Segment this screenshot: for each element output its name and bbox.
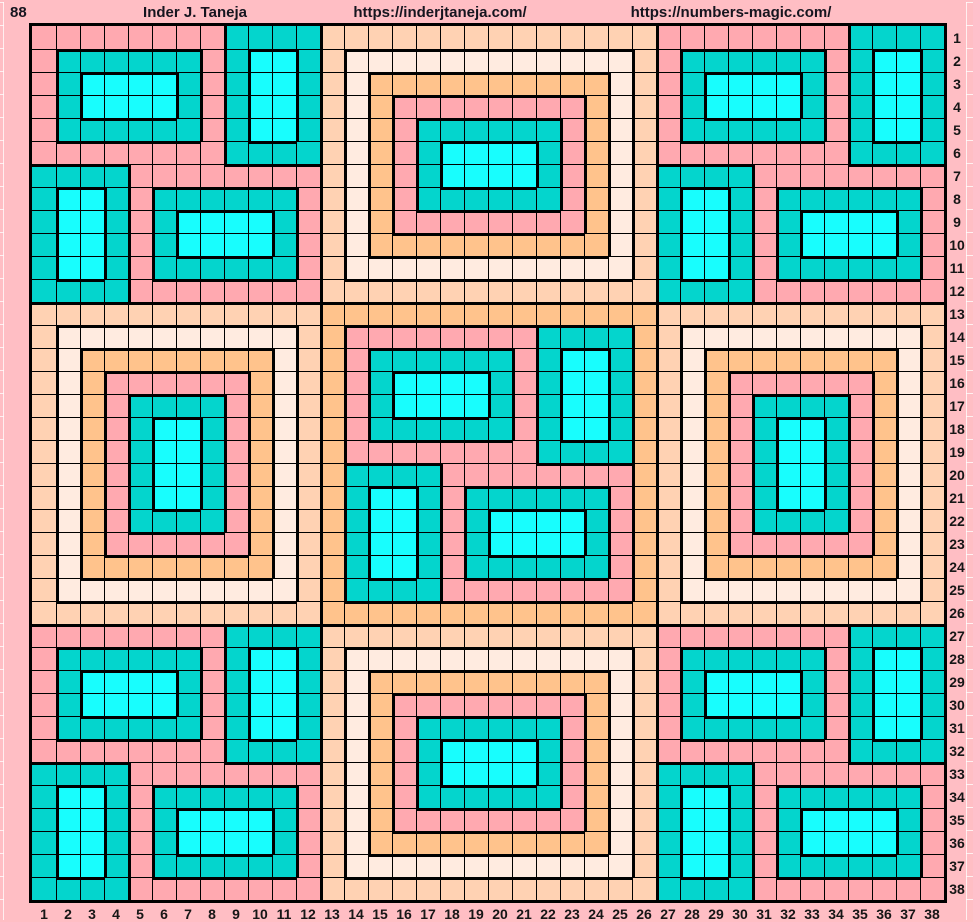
grid-cell[interactable] — [320, 624, 344, 647]
grid-cell[interactable] — [368, 72, 392, 95]
grid-cell[interactable] — [272, 647, 296, 670]
grid-cell[interactable] — [896, 118, 920, 141]
grid-cell[interactable] — [80, 555, 104, 578]
grid-cell[interactable] — [272, 49, 296, 72]
grid-cell[interactable] — [176, 118, 200, 141]
grid-cell[interactable] — [32, 532, 56, 555]
grid-cell[interactable] — [632, 49, 656, 72]
grid-cell[interactable] — [176, 578, 200, 601]
grid-cell[interactable] — [800, 95, 824, 118]
grid-cell[interactable] — [392, 348, 416, 371]
grid-cell[interactable] — [560, 624, 584, 647]
grid-cell[interactable] — [680, 854, 704, 877]
grid-cell[interactable] — [608, 256, 632, 279]
grid-cell[interactable] — [104, 187, 128, 210]
grid-cell[interactable] — [152, 279, 176, 302]
grid-cell[interactable] — [656, 325, 680, 348]
grid-cell[interactable] — [152, 26, 176, 49]
grid-cell[interactable] — [272, 877, 296, 900]
grid-cell[interactable] — [872, 371, 896, 394]
grid-cell[interactable] — [824, 371, 848, 394]
grid-cell[interactable] — [560, 486, 584, 509]
grid-cell[interactable] — [632, 72, 656, 95]
grid-cell[interactable] — [248, 693, 272, 716]
grid-cell[interactable] — [224, 325, 248, 348]
grid-cell[interactable] — [464, 762, 488, 785]
grid-cell[interactable] — [128, 601, 152, 624]
grid-cell[interactable] — [704, 670, 728, 693]
grid-cell[interactable] — [224, 164, 248, 187]
grid-cell[interactable] — [920, 739, 944, 762]
grid-cell[interactable] — [368, 118, 392, 141]
grid-cell[interactable] — [680, 210, 704, 233]
grid-cell[interactable] — [680, 647, 704, 670]
grid-cell[interactable] — [416, 371, 440, 394]
grid-cell[interactable] — [464, 187, 488, 210]
grid-cell[interactable] — [536, 601, 560, 624]
grid-cell[interactable] — [608, 877, 632, 900]
grid-cell[interactable] — [200, 279, 224, 302]
grid-cell[interactable] — [608, 808, 632, 831]
grid-cell[interactable] — [80, 279, 104, 302]
grid-cell[interactable] — [824, 141, 848, 164]
grid-cell[interactable] — [632, 302, 656, 325]
grid-cell[interactable] — [344, 279, 368, 302]
grid-cell[interactable] — [488, 739, 512, 762]
grid-cell[interactable] — [632, 601, 656, 624]
grid-cell[interactable] — [656, 693, 680, 716]
grid-cell[interactable] — [560, 348, 584, 371]
grid-cell[interactable] — [752, 739, 776, 762]
grid-cell[interactable] — [176, 210, 200, 233]
grid-cell[interactable] — [728, 95, 752, 118]
grid-cell[interactable] — [320, 394, 344, 417]
grid-cell[interactable] — [560, 279, 584, 302]
grid-cell[interactable] — [80, 647, 104, 670]
grid-cell[interactable] — [248, 279, 272, 302]
grid-cell[interactable] — [872, 72, 896, 95]
grid-cell[interactable] — [536, 555, 560, 578]
grid-cell[interactable] — [368, 739, 392, 762]
grid-cell[interactable] — [848, 877, 872, 900]
grid-cell[interactable] — [344, 325, 368, 348]
grid-cell[interactable] — [56, 716, 80, 739]
grid-cell[interactable] — [728, 647, 752, 670]
grid-cell[interactable] — [344, 808, 368, 831]
grid-cell[interactable] — [272, 164, 296, 187]
grid-cell[interactable] — [248, 371, 272, 394]
grid-cell[interactable] — [32, 831, 56, 854]
grid-cell[interactable] — [776, 716, 800, 739]
grid-cell[interactable] — [272, 26, 296, 49]
grid-cell[interactable] — [296, 578, 320, 601]
grid-cell[interactable] — [752, 210, 776, 233]
grid-cell[interactable] — [632, 141, 656, 164]
grid-cell[interactable] — [848, 578, 872, 601]
grid-cell[interactable] — [560, 164, 584, 187]
grid-cell[interactable] — [224, 486, 248, 509]
grid-cell[interactable] — [392, 555, 416, 578]
grid-cell[interactable] — [104, 739, 128, 762]
grid-cell[interactable] — [704, 693, 728, 716]
grid-cell[interactable] — [56, 624, 80, 647]
grid-cell[interactable] — [608, 785, 632, 808]
grid-cell[interactable] — [464, 302, 488, 325]
grid-cell[interactable] — [416, 785, 440, 808]
grid-cell[interactable] — [344, 486, 368, 509]
grid-cell[interactable] — [896, 854, 920, 877]
grid-cell[interactable] — [392, 49, 416, 72]
grid-cell[interactable] — [80, 670, 104, 693]
grid-cell[interactable] — [704, 739, 728, 762]
grid-cell[interactable] — [128, 877, 152, 900]
grid-cell[interactable] — [536, 532, 560, 555]
grid-cell[interactable] — [704, 440, 728, 463]
grid-cell[interactable] — [56, 233, 80, 256]
grid-cell[interactable] — [128, 371, 152, 394]
grid-cell[interactable] — [80, 256, 104, 279]
grid-cell[interactable] — [896, 831, 920, 854]
grid-cell[interactable] — [416, 440, 440, 463]
grid-cell[interactable] — [776, 854, 800, 877]
grid-cell[interactable] — [152, 164, 176, 187]
grid-cell[interactable] — [368, 95, 392, 118]
grid-cell[interactable] — [560, 141, 584, 164]
grid-cell[interactable] — [536, 417, 560, 440]
grid-cell[interactable] — [512, 394, 536, 417]
grid-cell[interactable] — [224, 647, 248, 670]
grid-cell[interactable] — [680, 463, 704, 486]
grid-cell[interactable] — [608, 49, 632, 72]
grid-cell[interactable] — [560, 440, 584, 463]
grid-cell[interactable] — [464, 440, 488, 463]
grid-cell[interactable] — [776, 532, 800, 555]
grid-cell[interactable] — [368, 693, 392, 716]
grid-cell[interactable] — [632, 26, 656, 49]
grid-cell[interactable] — [440, 233, 464, 256]
grid-cell[interactable] — [608, 26, 632, 49]
grid-cell[interactable] — [656, 164, 680, 187]
grid-cell[interactable] — [32, 854, 56, 877]
grid-cell[interactable] — [176, 463, 200, 486]
grid-cell[interactable] — [704, 647, 728, 670]
grid-cell[interactable] — [488, 670, 512, 693]
grid-cell[interactable] — [728, 532, 752, 555]
grid-cell[interactable] — [512, 831, 536, 854]
grid-cell[interactable] — [56, 210, 80, 233]
grid-cell[interactable] — [56, 693, 80, 716]
grid-cell[interactable] — [536, 693, 560, 716]
grid-cell[interactable] — [752, 279, 776, 302]
grid-cell[interactable] — [464, 808, 488, 831]
grid-cell[interactable] — [800, 762, 824, 785]
grid-cell[interactable] — [368, 187, 392, 210]
grid-cell[interactable] — [632, 233, 656, 256]
grid-cell[interactable] — [368, 233, 392, 256]
grid-cell[interactable] — [560, 463, 584, 486]
grid-cell[interactable] — [32, 601, 56, 624]
grid-cell[interactable] — [248, 210, 272, 233]
grid-cell[interactable] — [560, 532, 584, 555]
grid-cell[interactable] — [920, 854, 944, 877]
grid-cell[interactable] — [872, 325, 896, 348]
grid-cell[interactable] — [656, 302, 680, 325]
grid-cell[interactable] — [872, 440, 896, 463]
grid-cell[interactable] — [608, 210, 632, 233]
grid-cell[interactable] — [656, 808, 680, 831]
grid-cell[interactable] — [584, 877, 608, 900]
grid-cell[interactable] — [80, 141, 104, 164]
grid-cell[interactable] — [776, 624, 800, 647]
grid-cell[interactable] — [704, 95, 728, 118]
grid-cell[interactable] — [32, 877, 56, 900]
grid-cell[interactable] — [680, 394, 704, 417]
grid-cell[interactable] — [680, 417, 704, 440]
grid-cell[interactable] — [368, 210, 392, 233]
grid-cell[interactable] — [896, 785, 920, 808]
grid-cell[interactable] — [728, 831, 752, 854]
grid-cell[interactable] — [728, 440, 752, 463]
grid-cell[interactable] — [800, 785, 824, 808]
grid-cell[interactable] — [464, 555, 488, 578]
grid-cell[interactable] — [704, 210, 728, 233]
grid-cell[interactable] — [848, 394, 872, 417]
grid-cell[interactable] — [152, 187, 176, 210]
grid-cell[interactable] — [848, 716, 872, 739]
grid-cell[interactable] — [824, 785, 848, 808]
grid-cell[interactable] — [872, 49, 896, 72]
grid-cell[interactable] — [512, 509, 536, 532]
grid-cell[interactable] — [416, 302, 440, 325]
grid-cell[interactable] — [104, 325, 128, 348]
grid-cell[interactable] — [440, 716, 464, 739]
grid-cell[interactable] — [776, 279, 800, 302]
grid-cell[interactable] — [800, 72, 824, 95]
grid-cell[interactable] — [272, 808, 296, 831]
grid-cell[interactable] — [248, 785, 272, 808]
grid-cell[interactable] — [80, 348, 104, 371]
grid-cell[interactable] — [320, 877, 344, 900]
grid-cell[interactable] — [320, 785, 344, 808]
grid-cell[interactable] — [584, 325, 608, 348]
grid-cell[interactable] — [248, 509, 272, 532]
grid-cell[interactable] — [128, 256, 152, 279]
grid-cell[interactable] — [440, 26, 464, 49]
grid-cell[interactable] — [416, 647, 440, 670]
grid-cell[interactable] — [32, 95, 56, 118]
grid-cell[interactable] — [176, 808, 200, 831]
grid-cell[interactable] — [368, 601, 392, 624]
grid-cell[interactable] — [536, 394, 560, 417]
grid-cell[interactable] — [296, 716, 320, 739]
grid-cell[interactable] — [392, 486, 416, 509]
grid-cell[interactable] — [728, 624, 752, 647]
grid-cell[interactable] — [800, 877, 824, 900]
grid-cell[interactable] — [56, 785, 80, 808]
grid-cell[interactable] — [560, 49, 584, 72]
grid-cell[interactable] — [656, 647, 680, 670]
grid-cell[interactable] — [680, 509, 704, 532]
grid-cell[interactable] — [296, 394, 320, 417]
grid-cell[interactable] — [176, 256, 200, 279]
grid-cell[interactable] — [440, 302, 464, 325]
grid-cell[interactable] — [32, 509, 56, 532]
grid-cell[interactable] — [200, 578, 224, 601]
grid-cell[interactable] — [80, 95, 104, 118]
grid-cell[interactable] — [608, 578, 632, 601]
grid-cell[interactable] — [896, 371, 920, 394]
grid-cell[interactable] — [536, 164, 560, 187]
grid-cell[interactable] — [824, 118, 848, 141]
grid-cell[interactable] — [440, 693, 464, 716]
grid-cell[interactable] — [680, 808, 704, 831]
grid-cell[interactable] — [680, 95, 704, 118]
grid-cell[interactable] — [752, 49, 776, 72]
grid-cell[interactable] — [896, 95, 920, 118]
grid-cell[interactable] — [392, 26, 416, 49]
grid-cell[interactable] — [320, 233, 344, 256]
grid-cell[interactable] — [536, 624, 560, 647]
grid-cell[interactable] — [440, 279, 464, 302]
grid-cell[interactable] — [152, 854, 176, 877]
grid-cell[interactable] — [80, 72, 104, 95]
grid-cell[interactable] — [248, 394, 272, 417]
grid-cell[interactable] — [224, 716, 248, 739]
grid-cell[interactable] — [872, 785, 896, 808]
grid-cell[interactable] — [512, 601, 536, 624]
grid-cell[interactable] — [680, 141, 704, 164]
grid-cell[interactable] — [104, 831, 128, 854]
grid-cell[interactable] — [728, 877, 752, 900]
grid-cell[interactable] — [368, 463, 392, 486]
grid-cell[interactable] — [344, 141, 368, 164]
grid-cell[interactable] — [344, 670, 368, 693]
grid-cell[interactable] — [584, 440, 608, 463]
grid-cell[interactable] — [896, 210, 920, 233]
grid-cell[interactable] — [440, 762, 464, 785]
grid-cell[interactable] — [56, 831, 80, 854]
grid-cell[interactable] — [440, 95, 464, 118]
grid-cell[interactable] — [536, 49, 560, 72]
grid-cell[interactable] — [272, 279, 296, 302]
grid-cell[interactable] — [752, 555, 776, 578]
grid-cell[interactable] — [152, 463, 176, 486]
grid-cell[interactable] — [248, 118, 272, 141]
grid-cell[interactable] — [584, 532, 608, 555]
grid-cell[interactable] — [464, 716, 488, 739]
grid-cell[interactable] — [272, 693, 296, 716]
grid-cell[interactable] — [584, 578, 608, 601]
grid-cell[interactable] — [608, 532, 632, 555]
grid-cell[interactable] — [608, 555, 632, 578]
grid-cell[interactable] — [752, 302, 776, 325]
grid-cell[interactable] — [464, 624, 488, 647]
grid-cell[interactable] — [224, 578, 248, 601]
grid-cell[interactable] — [176, 26, 200, 49]
grid-cell[interactable] — [104, 233, 128, 256]
grid-cell[interactable] — [32, 808, 56, 831]
grid-cell[interactable] — [224, 371, 248, 394]
grid-cell[interactable] — [800, 854, 824, 877]
grid-cell[interactable] — [584, 187, 608, 210]
grid-cell[interactable] — [728, 693, 752, 716]
grid-cell[interactable] — [896, 279, 920, 302]
grid-cell[interactable] — [296, 647, 320, 670]
grid-cell[interactable] — [584, 555, 608, 578]
grid-cell[interactable] — [200, 72, 224, 95]
grid-cell[interactable] — [296, 509, 320, 532]
grid-cell[interactable] — [752, 762, 776, 785]
grid-cell[interactable] — [560, 693, 584, 716]
grid-cell[interactable] — [656, 187, 680, 210]
grid-cell[interactable] — [368, 624, 392, 647]
grid-cell[interactable] — [488, 210, 512, 233]
grid-cell[interactable] — [152, 486, 176, 509]
grid-cell[interactable] — [488, 95, 512, 118]
grid-cell[interactable] — [560, 118, 584, 141]
grid-cell[interactable] — [224, 95, 248, 118]
grid-cell[interactable] — [608, 118, 632, 141]
grid-cell[interactable] — [368, 279, 392, 302]
grid-cell[interactable] — [128, 95, 152, 118]
grid-cell[interactable] — [392, 785, 416, 808]
grid-cell[interactable] — [560, 325, 584, 348]
grid-cell[interactable] — [224, 509, 248, 532]
grid-cell[interactable] — [368, 509, 392, 532]
grid-cell[interactable] — [344, 187, 368, 210]
grid-cell[interactable] — [80, 118, 104, 141]
grid-cell[interactable] — [848, 164, 872, 187]
grid-cell[interactable] — [128, 578, 152, 601]
grid-cell[interactable] — [728, 417, 752, 440]
grid-cell[interactable] — [608, 325, 632, 348]
grid-cell[interactable] — [776, 578, 800, 601]
grid-cell[interactable] — [824, 302, 848, 325]
grid-cell[interactable] — [32, 325, 56, 348]
grid-cell[interactable] — [872, 118, 896, 141]
grid-cell[interactable] — [296, 624, 320, 647]
grid-cell[interactable] — [56, 95, 80, 118]
grid-cell[interactable] — [248, 555, 272, 578]
grid-cell[interactable] — [896, 762, 920, 785]
grid-cell[interactable] — [416, 532, 440, 555]
grid-cell[interactable] — [752, 256, 776, 279]
grid-cell[interactable] — [824, 601, 848, 624]
grid-cell[interactable] — [800, 463, 824, 486]
grid-cell[interactable] — [440, 509, 464, 532]
grid-cell[interactable] — [176, 325, 200, 348]
grid-cell[interactable] — [152, 256, 176, 279]
grid-cell[interactable] — [752, 785, 776, 808]
grid-cell[interactable] — [848, 601, 872, 624]
grid-cell[interactable] — [296, 601, 320, 624]
grid-cell[interactable] — [656, 72, 680, 95]
grid-cell[interactable] — [344, 417, 368, 440]
grid-cell[interactable] — [296, 831, 320, 854]
grid-cell[interactable] — [704, 555, 728, 578]
grid-cell[interactable] — [200, 233, 224, 256]
grid-cell[interactable] — [128, 624, 152, 647]
grid-cell[interactable] — [56, 302, 80, 325]
grid-cell[interactable] — [656, 233, 680, 256]
grid-cell[interactable] — [728, 509, 752, 532]
grid-cell[interactable] — [368, 762, 392, 785]
grid-cell[interactable] — [368, 164, 392, 187]
grid-cell[interactable] — [344, 693, 368, 716]
grid-cell[interactable] — [416, 394, 440, 417]
grid-cell[interactable] — [464, 394, 488, 417]
grid-cell[interactable] — [560, 72, 584, 95]
